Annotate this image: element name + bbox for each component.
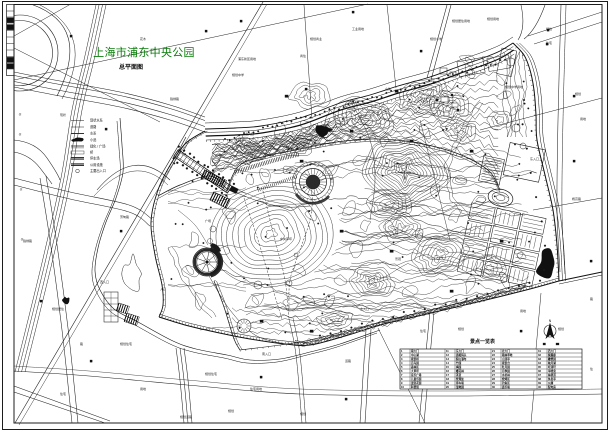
- svg-text:芳甸路: 芳甸路: [120, 214, 129, 219]
- svg-text:北大门: 北大门: [502, 349, 510, 353]
- svg-text:映月湖: 映月湖: [548, 361, 556, 365]
- svg-text:规划: 规划: [228, 408, 234, 413]
- svg-text:·居: ·居: [18, 112, 22, 116]
- svg-text:规划商业: 规划商业: [310, 36, 322, 41]
- svg-text:紫藤廊: 紫藤廊: [548, 353, 556, 357]
- svg-text:东大门: 东大门: [456, 349, 464, 353]
- svg-text:山体: 山体: [385, 86, 391, 91]
- svg-text:百鸟园: 百鸟园: [411, 361, 419, 365]
- svg-text:西入口: 西入口: [100, 280, 109, 284]
- svg-text:温室花园: 温室花园: [411, 381, 422, 385]
- svg-text:游乐场: 游乐场: [502, 385, 510, 389]
- svg-text:牡丹园: 牡丹园: [501, 365, 510, 369]
- svg-text:规划用地: 规划用地: [487, 16, 499, 21]
- svg-text:森林区: 森林区: [410, 365, 419, 369]
- svg-text:茶室: 茶室: [456, 373, 462, 377]
- svg-text:规划: 规划: [558, 326, 564, 331]
- svg-text:用地: 用地: [140, 386, 146, 391]
- svg-text:广场: 广场: [205, 218, 211, 223]
- svg-text:管理处: 管理处: [456, 377, 464, 381]
- svg-text:路: 路: [80, 341, 83, 346]
- svg-text:东入口: 东入口: [530, 156, 539, 161]
- svg-text:规划: 规划: [300, 411, 306, 416]
- svg-text:规划小学: 规划小学: [430, 36, 442, 41]
- svg-text:规划居住: 规划居住: [52, 306, 64, 311]
- svg-text:花木: 花木: [140, 36, 146, 41]
- svg-text:绿化 / 广场: 绿化 / 广场: [90, 144, 105, 149]
- svg-text:规划住宅: 规划住宅: [120, 341, 132, 346]
- svg-text:规划住宅: 规划住宅: [205, 371, 217, 376]
- svg-text:锦绣路: 锦绣路: [170, 96, 179, 101]
- svg-text:大草坪: 大草坪: [410, 369, 419, 373]
- svg-text:现状: 现状: [60, 112, 66, 117]
- svg-text:中央草坪: 中央草坪: [280, 236, 292, 241]
- svg-text:音乐广场: 音乐广场: [411, 373, 422, 377]
- svg-text:旱喷泉: 旱喷泉: [548, 369, 556, 373]
- svg-text:雕塑园: 雕塑园: [548, 357, 556, 361]
- svg-text:住宅: 住宅: [420, 328, 426, 333]
- svg-text:休息亭: 休息亭: [547, 377, 556, 381]
- svg-text:主要出入口: 主要出入口: [90, 168, 106, 173]
- svg-text:儿童乐园: 儿童乐园: [410, 377, 422, 381]
- svg-text:梅园: 梅园: [456, 365, 462, 369]
- svg-text:小品: 小品: [90, 137, 96, 142]
- svg-text:住宅用地: 住宅用地: [250, 386, 262, 391]
- svg-text:路: 路: [590, 296, 593, 301]
- svg-text:湿地园: 湿地园: [456, 385, 464, 389]
- svg-text:南入口: 南入口: [262, 351, 271, 356]
- svg-text:入口: 入口: [160, 287, 166, 291]
- svg-text:规划: 规划: [575, 91, 581, 96]
- svg-text:钓鱼区: 钓鱼区: [502, 381, 510, 385]
- svg-text:规划道路: 规划道路: [180, 414, 192, 419]
- svg-text:道路: 道路: [345, 358, 351, 363]
- svg-text:观景台: 观景台: [501, 361, 510, 365]
- svg-text:樱花林: 樱花林: [456, 369, 464, 373]
- svg-text:规划: 规划: [458, 326, 464, 331]
- svg-text:公厕: 公厕: [548, 381, 554, 385]
- svg-text:烧烤区: 烧烤区: [502, 377, 510, 381]
- svg-text:用地: 用地: [520, 308, 526, 313]
- svg-text:游船码头: 游船码头: [456, 353, 467, 357]
- svg-text:上海市浦东中央公园: 上海市浦东中央公园: [93, 45, 195, 59]
- svg-text:北入口: 北入口: [245, 131, 254, 136]
- svg-text:住宅: 住宅: [60, 391, 66, 396]
- svg-text:杨高路: 杨高路: [572, 196, 581, 201]
- svg-text:锦绣路: 锦绣路: [23, 238, 32, 243]
- svg-text:主入口: 主入口: [360, 306, 369, 311]
- svg-text:道路: 道路: [90, 124, 97, 129]
- svg-text:景观: 景观: [395, 256, 401, 261]
- svg-text:规划中学: 规划中学: [232, 72, 244, 77]
- svg-text:观景桥: 观景桥: [410, 357, 419, 361]
- svg-text:山顶亭: 山顶亭: [502, 357, 510, 361]
- svg-text:科普馆: 科普馆: [410, 385, 419, 389]
- svg-text:浦东新区用地: 浦东新区用地: [238, 56, 256, 61]
- svg-text:·居: ·居: [18, 132, 22, 136]
- svg-text:疏林草地: 疏林草地: [501, 353, 513, 357]
- svg-text:商住: 商住: [300, 53, 306, 58]
- svg-text:·居: ·居: [19, 187, 23, 191]
- svg-text:规划中学用地: 规划中学用地: [505, 84, 523, 89]
- svg-text:西大门: 西大门: [548, 349, 556, 353]
- svg-text:工业用地: 工业用地: [352, 26, 364, 31]
- svg-text:南大门: 南大门: [411, 349, 419, 353]
- svg-text:林荫道: 林荫道: [547, 373, 556, 377]
- svg-text:配电房: 配电房: [548, 385, 556, 389]
- svg-text:竹园: 竹园: [455, 361, 462, 365]
- svg-text:假山瀑布: 假山瀑布: [456, 357, 467, 361]
- svg-text:水系: 水系: [90, 131, 96, 136]
- svg-text:景点一览表: 景点一览表: [470, 338, 496, 345]
- svg-text:公用设施: 公用设施: [90, 162, 104, 167]
- svg-text:停车场: 停车场: [90, 156, 100, 161]
- svg-text:月季园: 月季园: [501, 369, 510, 373]
- svg-text:总平面图: 总平面图: [119, 63, 143, 71]
- svg-text:规划居住用地: 规划居住用地: [452, 18, 470, 23]
- svg-text:住: 住: [590, 366, 593, 371]
- svg-text:用地: 用地: [580, 116, 586, 121]
- svg-text:中心湖: 中心湖: [411, 353, 419, 357]
- svg-text:湖: 湖: [330, 176, 333, 181]
- svg-text:现状水系: 现状水系: [90, 118, 103, 123]
- svg-text:听涛轩: 听涛轩: [548, 365, 556, 369]
- svg-text:停车场: 停车场: [456, 381, 464, 385]
- svg-text:水杉林: 水杉林: [502, 373, 510, 377]
